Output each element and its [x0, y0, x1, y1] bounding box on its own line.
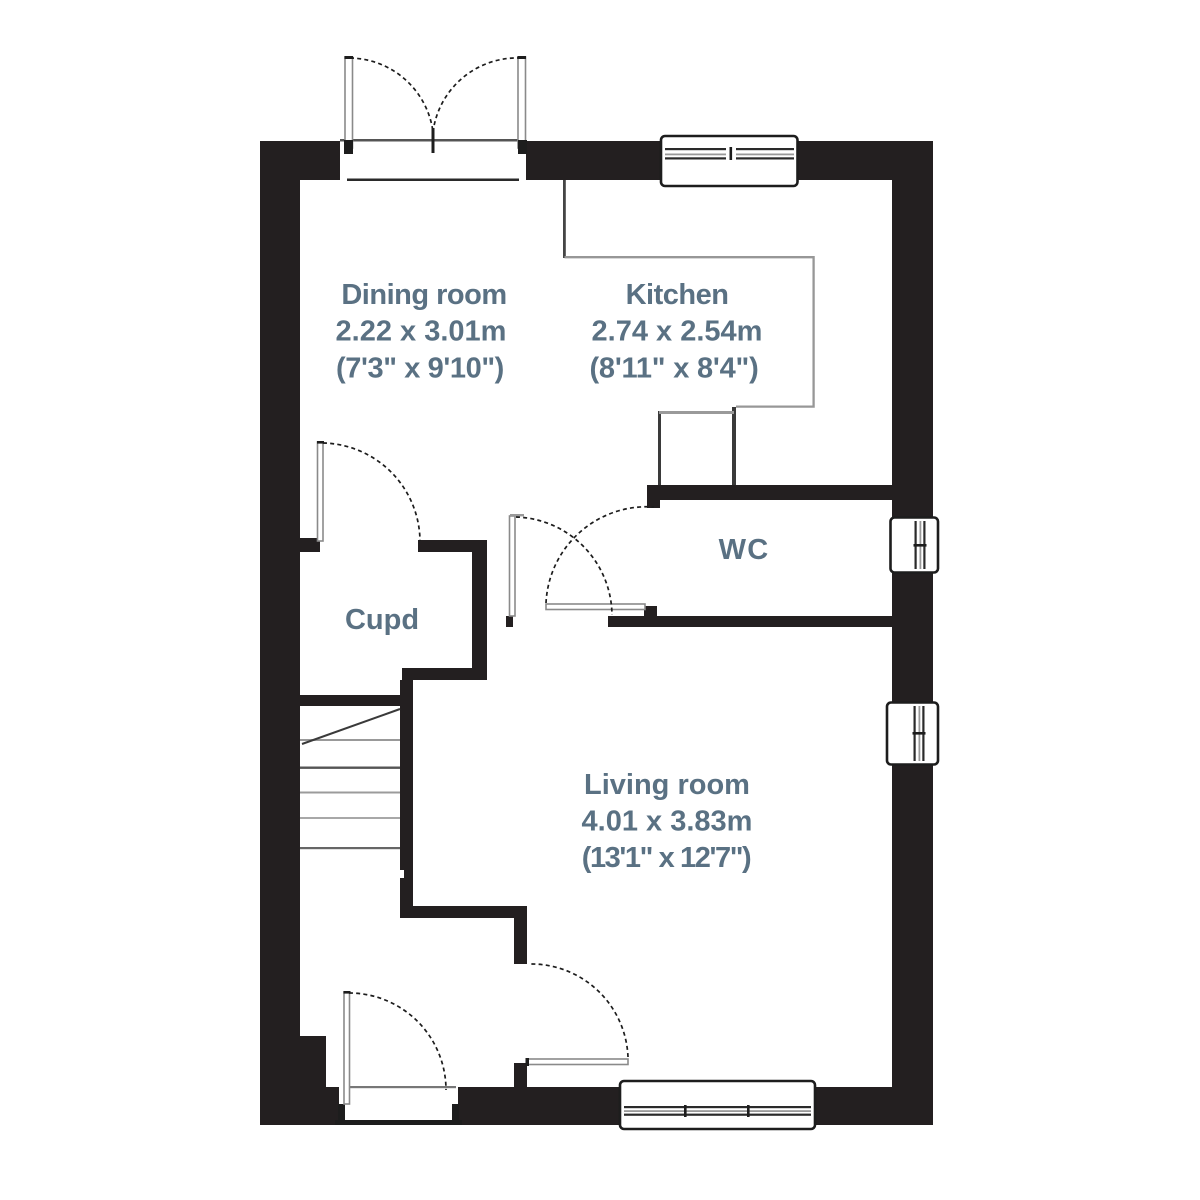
svg-text:Living room: Living room [584, 769, 750, 801]
svg-text:Dining room: Dining room [341, 279, 506, 311]
svg-text:Cupd: Cupd [345, 604, 419, 636]
svg-text:(7'3" x 9'10"): (7'3" x 9'10") [336, 353, 504, 385]
svg-text:Kitchen: Kitchen [626, 279, 729, 311]
svg-text:2.22 x 3.01m: 2.22 x 3.01m [336, 316, 507, 348]
svg-text:(8'11" x 8'4"): (8'11" x 8'4") [589, 353, 758, 385]
svg-text:2.74 x 2.54m: 2.74 x 2.54m [592, 316, 763, 348]
svg-text:(13'1" x 12'7"): (13'1" x 12'7") [582, 842, 751, 874]
svg-text:4.01 x 3.83m: 4.01 x 3.83m [582, 806, 753, 838]
svg-text:WC: WC [719, 534, 770, 566]
